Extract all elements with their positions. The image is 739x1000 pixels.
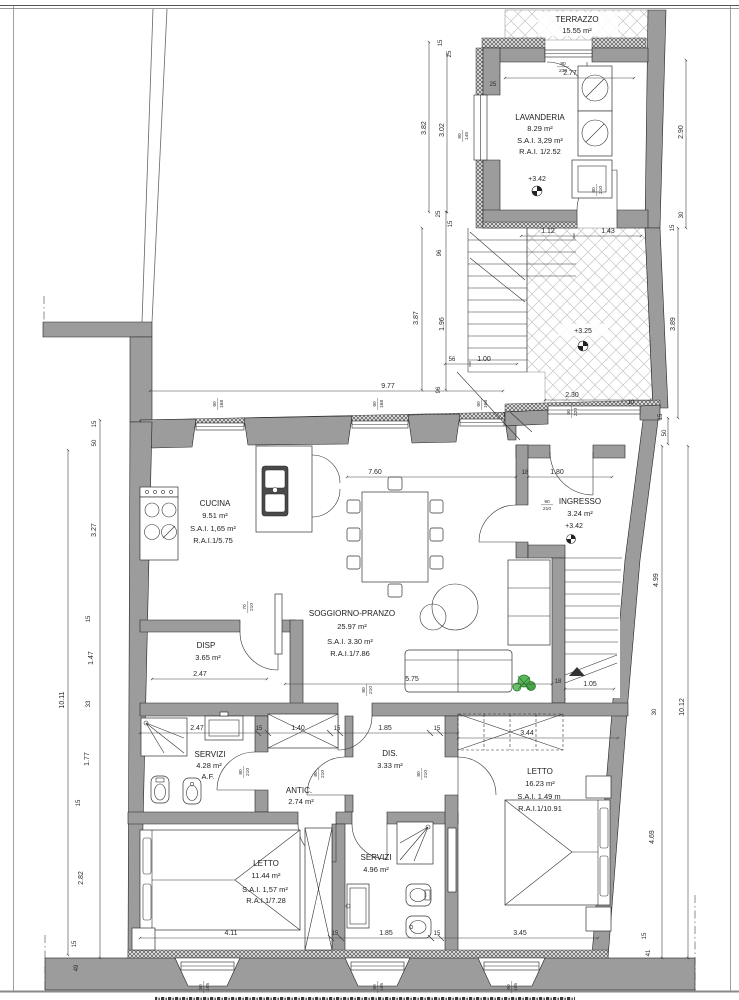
dim-382: 3.82 [421, 121, 428, 135]
dim-147: 1.47 [88, 651, 95, 665]
dim-r41: 41 [646, 949, 652, 956]
dim-345: 3.45 [513, 930, 527, 937]
tag-80-210-antic: 80210 [313, 768, 326, 780]
dim-r50: 50 [662, 429, 668, 436]
dim-100: 1.00 [477, 356, 491, 363]
svg-text:165: 165 [205, 983, 211, 991]
room-soggiorno-name: SOGGIORNO-PRANZO [309, 609, 395, 618]
dim-389: 3.89 [670, 317, 677, 331]
room-terrazzo-name: TERRAZZO [555, 15, 598, 24]
shower-1 [141, 718, 187, 756]
room-antic-area: 2.74 m² [288, 797, 314, 806]
dim-105: 1.05 [583, 681, 597, 688]
room-disp-name: DISP [197, 641, 216, 650]
landing-floor [527, 228, 653, 412]
room-ingresso-name: INGRESSO [559, 497, 601, 506]
svg-text:90: 90 [476, 401, 482, 407]
nightstand-letto2-a [586, 776, 611, 798]
wc-1 [151, 776, 169, 803]
bed-letto1 [140, 830, 300, 930]
svg-text:90: 90 [372, 401, 378, 407]
dim-l15a: 15 [92, 420, 98, 427]
room-soggiorno-area: 25.97 m² [337, 622, 367, 631]
dim-180: 1.80 [550, 469, 564, 476]
dim-t25-mid: 25 [436, 210, 442, 217]
room-lavanderia-sai: S.A.I. 3,29 m² [517, 136, 563, 145]
dim-l33: 33 [86, 700, 92, 707]
room-labels: TERRAZZO 15.55 m² LAVANDERIA 8.29 m² S.A… [190, 12, 618, 905]
dim-143: 1.43 [601, 228, 615, 235]
interior-stair [565, 558, 622, 700]
wardrobe-letto2 [458, 714, 563, 750]
level-lavanderia: +3.42 [528, 176, 546, 183]
svg-text:70: 70 [242, 604, 248, 610]
dim-l49: 49 [74, 964, 80, 971]
room-soggiorno-rai: R.A.I.1/7.86 [330, 649, 370, 658]
room-letto1-area: 11.44 m² [251, 871, 281, 880]
room-letto1-sai: S.A.I. 1,57 m² [242, 885, 288, 894]
dim-977: 9.77 [381, 383, 395, 390]
dim-344: 3.44 [520, 730, 534, 737]
svg-text:220: 220 [573, 408, 579, 416]
bidet-1 [183, 778, 201, 804]
dim-t15-e: 15 [434, 931, 441, 937]
room-letto2-rai: R.A.I.1/10.91 [518, 804, 562, 813]
floor-plan-sheet: 2.77 1.12 1.43 56 1.00 2.30 9.77 7.60 1.… [0, 0, 739, 1000]
svg-text:90: 90 [566, 409, 572, 415]
ingresso-soggiorno-door [479, 505, 516, 542]
room-lavanderia-area: 8.29 m² [527, 124, 553, 133]
neighbour-wall-h [43, 322, 152, 337]
dim-t15-top: 15 [438, 39, 444, 46]
svg-text:168: 168 [219, 400, 225, 408]
room-cucina-rai: R.A.I.1/5.75 [193, 536, 233, 545]
antic-dis-door [307, 757, 345, 795]
dim-196: 1.96 [439, 317, 446, 331]
dim-185-dis: 1.85 [378, 725, 392, 732]
svg-text:210: 210 [543, 506, 551, 512]
dim-185-servizi2: 1.85 [379, 930, 393, 937]
room-letto1-rai: R.A.I.1/7.28 [246, 896, 286, 905]
svg-text:90: 90 [560, 61, 566, 67]
disp-door [240, 632, 278, 670]
room-disp-area: 3.65 m² [195, 653, 221, 662]
dim-96a: 96 [437, 249, 443, 256]
svg-text:80: 80 [361, 687, 367, 693]
level-marker-landing [578, 341, 588, 351]
svg-text:210: 210 [368, 686, 374, 694]
dim-387: 3.87 [413, 311, 420, 325]
sofa [405, 650, 512, 692]
room-letto2-sai: S.A.I. 1.49 m [517, 792, 560, 801]
svg-text:145: 145 [464, 132, 470, 140]
wall-tag-25: 25 [490, 82, 497, 88]
room-servizi2-name: SERVIZI [361, 853, 392, 862]
dim-l15d: 15 [72, 940, 78, 947]
tag-80-210-servizi1: 80210 [238, 766, 251, 778]
letto2-door [458, 757, 496, 795]
dim-469: 4.69 [649, 830, 656, 844]
room-servizi1-area: 4.28 m² [196, 761, 222, 770]
dim-r30a: 30 [679, 211, 685, 218]
stove [140, 487, 178, 560]
dim-r15a: 15 [670, 224, 676, 231]
dim-282: 2.82 [78, 871, 85, 885]
bidet-2 [406, 916, 431, 938]
dim-t25-top: 25 [447, 50, 453, 57]
dim-r30b: 30 [652, 708, 658, 715]
svg-text:90: 90 [506, 984, 512, 990]
tag-80-210-dis: 80210 [361, 684, 374, 696]
dim-l50: 50 [92, 439, 98, 446]
room-ingresso-area: 3.24 m² [567, 509, 593, 518]
radiator-letto2 [448, 828, 456, 892]
kitchen-island-sink [256, 446, 340, 532]
level-marker-ingresso [567, 535, 576, 544]
washing-machine-2 [578, 111, 612, 156]
wall-tag-18a: 18 [522, 470, 529, 476]
room-cucina-sai: S.A.I. 1,65 m² [190, 524, 236, 533]
open-door-leaf [275, 594, 282, 654]
sideboard [508, 560, 550, 645]
tag-80-210-letto2: 80210 [416, 768, 429, 780]
dim-760: 7.60 [368, 469, 382, 476]
wall-tag-18b: 18 [555, 679, 562, 685]
svg-text:90: 90 [457, 133, 463, 139]
washbasin-cabinet-1 [205, 712, 243, 740]
room-servizi1-note: A.F. [202, 772, 215, 781]
washing-machine-1 [578, 66, 612, 111]
dim-l15b: 15 [86, 615, 92, 622]
room-soggiorno-sai: S.A.I. 3.30 m² [327, 637, 373, 646]
svg-text:165: 165 [379, 983, 385, 991]
svg-text:80: 80 [416, 771, 422, 777]
neighbour-wall-v [130, 337, 152, 422]
tag-90-210-ingresso: 90210 [541, 499, 553, 512]
dim-177: 1.77 [84, 752, 91, 766]
bed-letto2 [505, 800, 610, 905]
svg-text:165: 165 [513, 983, 519, 991]
dim-t15-d: 15 [332, 931, 339, 937]
level-marker-lavanderia [532, 186, 542, 196]
room-antic-name: ANTIC. [286, 786, 312, 795]
svg-text:80: 80 [238, 769, 244, 775]
room-terrazzo-area: 15.55 m² [562, 26, 592, 35]
tag-90-145: 90145 [457, 130, 470, 142]
dim-1012: 10.12 [679, 698, 686, 716]
dim-l15c: 15 [76, 799, 82, 806]
dim-575: 5.75 [405, 676, 419, 683]
dim-112: 1.12 [541, 228, 555, 235]
svg-text:90: 90 [212, 401, 218, 407]
dim-247-disp: 2.47 [193, 671, 207, 678]
room-lavanderia-rai: R.A.I. 1/2.52 [519, 147, 561, 156]
dim-140: 1.40 [291, 725, 305, 732]
tag-90-168-w1: 90168 [212, 398, 225, 410]
shower-2 [397, 822, 433, 864]
dim-r15c: 15 [642, 932, 648, 939]
lavanderia-right-wall [645, 10, 666, 228]
washbasin-cabinet-2 [346, 884, 369, 928]
svg-text:80: 80 [591, 187, 597, 193]
svg-text:168: 168 [379, 400, 385, 408]
dim-96b: 96 [436, 386, 442, 393]
level-landing: +3.25 [574, 328, 592, 335]
rug-circle-small [420, 604, 446, 630]
tag-90-168-w2: 90168 [372, 398, 385, 410]
wc-2 [406, 884, 431, 906]
room-cucina-name: CUCINA [200, 499, 231, 508]
dim-56: 56 [449, 357, 456, 363]
svg-text:210: 210 [598, 186, 604, 194]
room-cucina-area: 9.51 m² [202, 511, 228, 520]
dim-t15-a: 15 [256, 726, 263, 732]
cropped-title-text [155, 995, 575, 1000]
svg-text:90: 90 [544, 499, 550, 505]
svg-text:210: 210 [245, 768, 251, 776]
rug-circle-large [432, 584, 478, 630]
nightstand-letto2-b [586, 907, 611, 931]
dim-290: 2.90 [678, 125, 685, 139]
svg-text:168: 168 [483, 400, 489, 408]
dim-411: 4.11 [224, 930, 237, 937]
dim-499: 4.99 [653, 573, 660, 587]
dim-t15-mid: 15 [448, 220, 454, 227]
room-lavanderia-name: LAVANDERIA [515, 113, 565, 122]
dim-1011: 10.11 [59, 691, 66, 708]
room-dis-area: 3.33 m² [377, 761, 403, 770]
level-ingresso: +3.42 [565, 523, 583, 530]
wall-tag-10: 10 [628, 400, 635, 406]
dim-302: 3.02 [439, 123, 446, 137]
svg-text:90: 90 [198, 984, 204, 990]
svg-text:90: 90 [372, 984, 378, 990]
dim-t15-b: 15 [334, 726, 341, 732]
tag-70-210: 70210 [242, 601, 255, 613]
dim-247-servizi: 2.47 [190, 725, 204, 732]
svg-text:230: 230 [559, 68, 567, 74]
closet-tall [305, 828, 332, 950]
svg-text:210: 210 [249, 603, 255, 611]
nightstand-letto1 [132, 928, 155, 950]
dim-230: 2.30 [565, 392, 579, 399]
dining-table [347, 477, 443, 597]
room-letto2-name: LETTO [527, 767, 553, 776]
room-letto2-area: 16.23 m² [525, 779, 555, 788]
dim-r15b: 15 [658, 413, 664, 420]
room-dis-name: DIS. [382, 749, 398, 758]
plant [513, 675, 536, 691]
room-letto1-name: LETTO [253, 859, 279, 868]
dim-t15-c: 15 [434, 726, 441, 732]
dim-327: 3.27 [91, 523, 98, 537]
room-servizi1-name: SERVIZI [195, 750, 226, 759]
room-servizi2-area: 4.96 m² [363, 865, 389, 874]
svg-text:210: 210 [423, 770, 429, 778]
floor-plan-svg: 2.77 1.12 1.43 56 1.00 2.30 9.77 7.60 1.… [0, 0, 739, 1000]
svg-text:80: 80 [313, 771, 319, 777]
svg-text:210: 210 [320, 770, 326, 778]
